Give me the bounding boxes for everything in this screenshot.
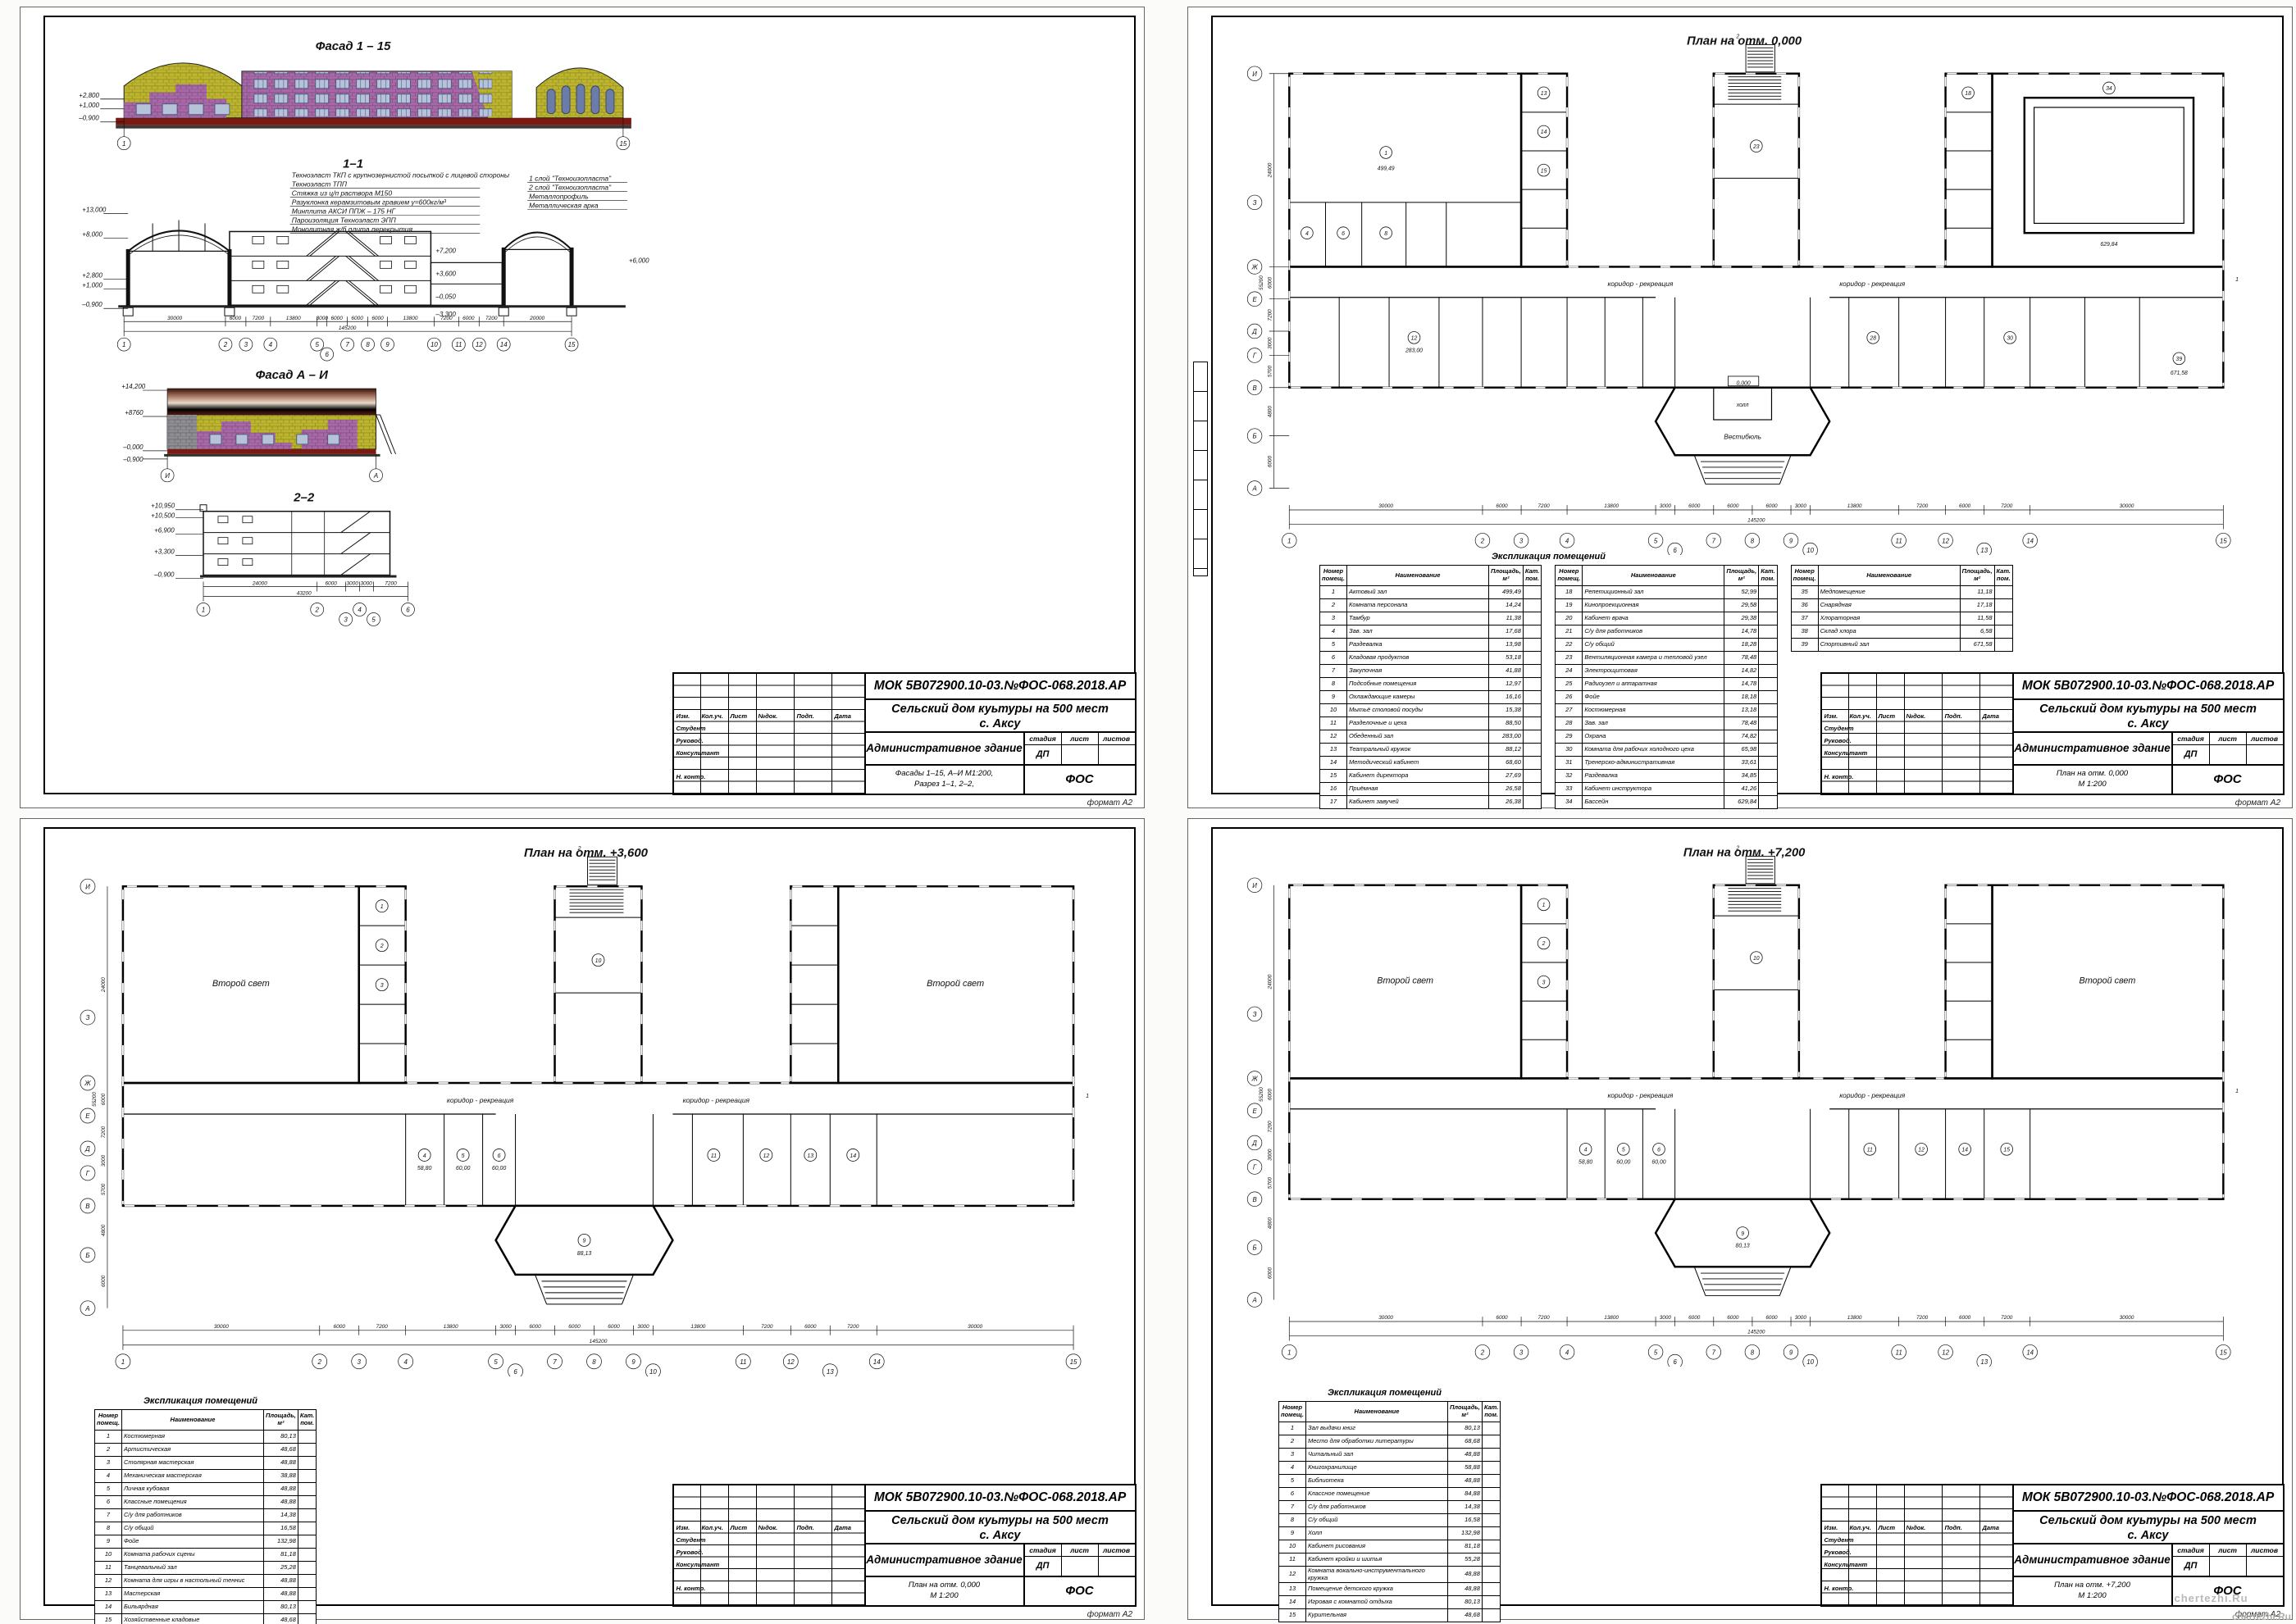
svg-text:7200: 7200 [376,1324,388,1330]
svg-text:4: 4 [1305,231,1309,237]
doc-code: МОК 5В072900.10-03.№ФОС-068.2018.АР [2014,1485,2283,1512]
svg-text:И: И [165,472,170,480]
svg-text:5700: 5700 [1268,1177,1273,1190]
elev-mark: +14,200 [121,383,146,390]
org-name: ФОС chertezhi.Ru [2171,1577,2283,1605]
svg-text:3: 3 [357,1358,361,1366]
svg-text:3000: 3000 [1660,1315,1672,1321]
table-row: 8 Подсобные помещения 12,97 [1320,678,1542,691]
svg-text:10: 10 [1806,1358,1814,1366]
elev-mark: +1,000 [79,102,99,109]
svg-text:5: 5 [371,616,376,624]
svg-text:2: 2 [1480,1349,1485,1356]
section1-title: 1–1 [343,157,363,171]
svg-text:А: А [373,472,378,480]
object-name: Административное здание [866,1544,1023,1576]
elev-mark: –0,900 [81,301,102,308]
doc-code: МОК 5В072900.10-03.№ФОС-068.2018.АР [866,674,1135,700]
room-schedule-1: Номер помещ.Наименование Площадь, м²Кат.… [1319,565,1542,809]
svg-text:11: 11 [1867,1148,1873,1153]
table-row: 26 Фойе 18,18 [1556,691,1777,704]
elev-mark: +6,900 [154,527,175,535]
svg-text:15: 15 [2220,537,2227,544]
room-area: 60,00 [1616,1160,1630,1166]
section-flag-1: 1 [2235,1089,2239,1094]
vestibule-label: Вестибюль [1724,433,1761,441]
tb-row-label: Н. контр. [676,773,706,780]
svg-text:10: 10 [430,341,438,348]
axis-bubble: 1 [122,140,125,148]
table-row: 14 Методический кабинет 68,60 [1320,757,1542,770]
table-row: 7 С/у для работников 14,38 [95,1509,317,1522]
stage-label: стадия [1025,733,1062,744]
elev-mark: +7,200 [435,247,456,254]
table-row: 11 Разделочные и цеха 88,50 [1320,717,1542,730]
dim: 7200 [253,316,265,321]
table-row: 4 Зав. зал 17,68 [1320,625,1542,639]
spec-line: Металлопрофиль [529,193,589,201]
svg-text:3000: 3000 [1268,337,1273,349]
svg-text:Г: Г [1253,353,1257,360]
svg-text:30000: 30000 [2120,503,2134,509]
svg-text:5: 5 [315,341,319,348]
svg-text:2: 2 [223,341,228,348]
svg-text:14: 14 [873,1358,881,1366]
table-row: 37 Хлораторная 11,58 [1791,612,2012,625]
svg-text:Е: Е [1252,296,1257,303]
table-row: 6 Классное помещение 84,88 [1279,1488,1501,1501]
table-row: 12 Обеденный зал 283,00 [1320,730,1542,744]
window-openings [1289,74,2223,388]
sheet-subject: План на отм. 0,000М 1:200 [2014,766,2171,794]
svg-text:24000: 24000 [101,977,107,993]
svg-text:13: 13 [827,1368,834,1376]
svg-text:13800: 13800 [1847,503,1862,509]
title-block: Изм. Кол.уч. Лист №док. Подп. Дата Студе… [672,1484,1137,1607]
svg-text:6: 6 [1657,1148,1660,1153]
table-row: 2 Артистическая 48,68 [95,1444,317,1457]
svg-text:13800: 13800 [444,1324,458,1330]
svg-text:13: 13 [1541,91,1547,97]
svg-text:3000: 3000 [499,1324,512,1330]
table-row: 3 Тамбур 11,38 [1320,612,1542,625]
arch-spec-list: 1 слой "Техноизопласта" 2 слой "Техноизо… [527,175,627,210]
svg-text:30000: 30000 [1378,503,1393,509]
axis-bubble: 15 [619,140,626,148]
table-row: 31 Тренерско-административная 33,61 [1556,757,1777,770]
svg-text:7200: 7200 [1916,1315,1929,1321]
svg-text:30000: 30000 [214,1324,229,1330]
svg-text:А: А [1251,1297,1256,1304]
room-schedule-area: Экспликация помещений Номер помещ.Наимен… [1278,1388,1501,1622]
elev-mark: +10,500 [151,512,175,520]
dim: 30000 [167,316,182,321]
svg-text:6000: 6000 [1765,1315,1778,1321]
table-row: 8 С/у общий 16,58 [1279,1514,1501,1527]
dim: 7200 [485,316,498,321]
room-schedule: Номер помещ.Наименование Площадь, м²Кат.… [94,1409,317,1624]
svg-text:11: 11 [455,341,462,348]
svg-text:12: 12 [1918,1148,1925,1153]
svg-text:7200: 7200 [2001,1315,2013,1321]
room-area: 60,00 [492,1166,507,1171]
svg-text:6000: 6000 [1496,503,1508,509]
spec-line: Пароизоляция Техноэласт ЭПП [292,216,397,224]
title-block-signatures: Изм. Кол.уч. Лист №док. Подп. Дата Студе… [1822,674,2014,794]
table-row: 13 Театральный кружок 88,12 [1320,744,1542,757]
site-watermark: chertezhi.Ru [2175,1592,2248,1604]
table-row: 29 Охрана 74,82 [1556,730,1777,744]
svg-text:5: 5 [494,1358,498,1366]
table-row: 5 Личная кубовая 48,88 [95,1483,317,1496]
schedule-title: Экспликация помещений [1328,1388,1501,1398]
window-openings [1289,885,2223,1199]
svg-text:6000: 6000 [101,1275,107,1287]
title-block-signatures: Изм. Кол.уч. Лист №док. Подп. Дата Студе… [674,674,866,794]
room-area: 58,80 [417,1166,432,1171]
svg-text:А: А [84,1305,89,1312]
sheet-plan-3600: План на отм. +3,600 [20,818,1145,1620]
svg-text:3000: 3000 [360,581,372,587]
svg-text:6: 6 [406,607,410,614]
org-name: ФОС [1023,1577,1135,1605]
table-row: 10 Кабинет рисования 81,18 [1279,1540,1501,1553]
corridor-label: коридор - рекреация [1607,280,1673,288]
plan-axes-bottom [116,1354,1081,1376]
tb-row-label: Студент [676,725,706,732]
svg-text:Д: Д [84,1145,90,1153]
table-row: 18 Репетиционный зал 52,99 [1556,586,1777,599]
room-marks: 1 4 6 8 12 13 14 15 18 23 28 30 34 39 49… [1301,82,2188,376]
schedule-title: Экспликация помещений [143,1396,317,1406]
svg-text:11: 11 [1896,1349,1902,1356]
svg-text:И: И [1252,71,1257,78]
svg-text:14: 14 [500,341,508,348]
dim: 3000 [316,316,328,321]
svg-text:13800: 13800 [1604,503,1619,509]
elev-mark: –0,900 [78,115,99,122]
table-row: 2 Комната персонала 14,24 [1320,599,1542,612]
facade-a-i: Фасад А – И +14,200 +8760 –0 [121,368,395,482]
void-label: Второй свет [1377,976,1433,986]
table-row: 14 Игровая с комнатой отдыха 80,13 [1279,1596,1501,1609]
table-row: 21 С/у для работников 14,78 [1556,625,1777,639]
svg-text:30000: 30000 [1378,1315,1393,1321]
pool-outer [2025,98,2193,233]
elev-mark: +10,950 [151,503,175,510]
room-area: 60,00 [1651,1160,1665,1166]
svg-text:6000: 6000 [1959,1315,1971,1321]
section1-drawing [118,220,626,316]
sheet-frame: Фасад 1 – 15 +2,800 +1,000 –0, [43,16,1136,794]
spec-line: Разуклонка керамзитовым гравием γ=600кг/… [292,198,447,207]
dim: 13800 [403,316,417,321]
room-area: 629,84 [2100,242,2117,248]
svg-text:15: 15 [1070,1358,1077,1366]
room-schedule-3: Номер помещ.Наименование Площадь, м²Кат.… [1791,565,2013,652]
elev-mark: +3,300 [154,548,175,556]
section-flag-1: 1 [2235,277,2239,283]
svg-text:3000: 3000 [1660,503,1672,509]
window-openings [123,886,1073,1206]
svg-text:6000: 6000 [1268,1267,1273,1280]
room-marks: 1 2 3 4 5 6 9 10 11 12 13 14 58,80 60,00… [376,900,859,1257]
table-row: 6 Кладовая продуктов 53,18 [1320,652,1542,665]
table-row: 12 Комната вокально-инструментального кр… [1279,1567,1501,1583]
svg-text:Б: Б [1253,433,1257,440]
svg-text:24000: 24000 [1268,162,1273,178]
sheet-subject: Фасады 1–15, А–И М1:200, Разрез 1–1, 2–2… [866,766,1023,794]
svg-text:Г: Г [1253,1164,1257,1171]
section-2-2: 2–2 +10,950 +10 [151,491,414,626]
room-area: 58,80 [1578,1160,1592,1166]
elev-mark: +6,000 [629,257,649,264]
svg-text:7200: 7200 [1268,1121,1273,1133]
svg-text:12: 12 [1942,537,1949,544]
svg-text:13: 13 [1980,1358,1988,1366]
svg-text:7200: 7200 [1916,503,1929,509]
svg-text:6: 6 [513,1368,517,1376]
svg-text:24000: 24000 [1268,974,1273,989]
project-line1: Сельский дом куьтуры на 500 мест [866,702,1135,716]
svg-text:14: 14 [1541,130,1547,135]
svg-text:34: 34 [2106,86,2112,92]
section-flag-2: 2 [577,846,581,852]
stairs [570,857,624,912]
svg-text:Б: Б [1253,1244,1257,1252]
svg-text:12: 12 [1942,1349,1949,1356]
svg-text:18: 18 [1965,91,1971,97]
svg-text:2: 2 [1542,941,1546,947]
svg-text:3: 3 [1519,537,1524,544]
elev-mark: –0,900 [122,456,143,463]
svg-text:28: 28 [1869,336,1876,342]
tb-col-label: Кол.уч. [702,712,723,720]
tb-col-label: Дата [835,712,851,720]
svg-text:43200: 43200 [297,591,312,597]
dim: 6000 [371,316,384,321]
svg-text:4: 4 [423,1153,426,1159]
entrance-steps [1694,455,1791,484]
svg-text:6000: 6000 [1688,1315,1701,1321]
svg-text:9: 9 [1789,1349,1793,1356]
svg-text:5: 5 [1622,1148,1625,1153]
svg-text:3000: 3000 [1795,503,1807,509]
elev-mark: +8760 [125,409,143,416]
approval-stamp [1193,362,1208,576]
plan-vdims: 24000 6000 7200 3000 5700 4800 6000 5520… [92,977,107,1287]
dim: 7200 [440,316,453,321]
tb-row-label: Консультант [676,749,720,757]
svg-text:9: 9 [583,1239,586,1244]
project-name: Сельский дом куьтуры на 500 местс. Аксу [2014,1512,2283,1544]
svg-text:6000: 6000 [1496,1315,1508,1321]
svg-text:10: 10 [1753,956,1760,962]
svg-text:7: 7 [553,1358,557,1366]
drawing-page: Фасад 1 – 15 +2,800 +1,000 –0, [0,0,2296,1624]
room-area: 671,58 [2171,371,2188,376]
elev-mark: +13,000 [82,206,107,213]
svg-text:3000: 3000 [637,1324,649,1330]
svg-text:6000: 6000 [1268,1089,1273,1101]
svg-text:Б: Б [85,1252,89,1259]
svg-text:14: 14 [2026,537,2034,544]
table-row: 15 Кабинет директора 27,69 [1320,770,1542,783]
svg-text:3000: 3000 [101,1154,107,1167]
elev-mark: –0,900 [153,571,175,579]
void-label: Второй свет [927,979,984,989]
table-row: 16 Приёмная 26,58 [1320,783,1542,796]
svg-text:9: 9 [1789,537,1793,544]
svg-text:В: В [85,1203,90,1210]
plan-3600-drawing: План на отм. +3,600 [45,829,1135,1376]
svg-text:5: 5 [1654,537,1658,544]
table-row: 15 Хозяйственные кладовые 48,68 [95,1614,317,1624]
project-name: Сельский дом куьтуры на 500 местс. Аксу [866,1512,1135,1544]
entrance-steps [535,1275,634,1304]
svg-text:23: 23 [1752,144,1760,150]
dim-total: 145200 [339,325,357,331]
svg-text:8: 8 [366,341,370,348]
list-label: лист [1062,733,1099,744]
svg-text:7: 7 [1712,537,1716,544]
pool-inner [2034,107,2184,223]
room-schedule-area: Экспликация помещений Номер помещ.Наимен… [94,1396,317,1624]
table-row: 27 Костюмерная 13,18 [1556,704,1777,717]
svg-text:7: 7 [1712,1349,1716,1356]
svg-text:А: А [1251,485,1256,493]
elev-mark: –0,050 [435,293,456,300]
object-name: Административное здание [2014,1544,2171,1576]
svg-text:3: 3 [380,983,384,989]
svg-text:1: 1 [380,904,384,910]
svg-text:6000: 6000 [1727,503,1739,509]
dim: 13800 [286,316,301,321]
svg-text:4: 4 [1584,1148,1588,1153]
svg-text:6000: 6000 [804,1324,817,1330]
sheet-frame: План на отм. 0,000 [1211,16,2284,794]
svg-text:1: 1 [122,341,125,348]
sheet-subject-line2: Разрез 1–1, 2–2, [914,780,974,790]
room-area: 80,13 [1736,1244,1750,1249]
svg-text:6000: 6000 [1688,503,1701,509]
table-row: 30 Комната для рабочих холодного цеха 65… [1556,744,1777,757]
svg-text:7200: 7200 [101,1126,107,1138]
section-flag-2: 2 [1735,34,1739,39]
sheet-subject: План на отм. 0,000М 1:200 [866,1577,1023,1605]
svg-text:12: 12 [787,1358,795,1366]
svg-text:И: И [1252,882,1257,889]
table-row: 1 Актовый зал 499,49 [1320,586,1542,599]
svg-text:15: 15 [568,341,576,348]
table-row: 35 Медпомещение 11,18 [1791,586,2012,599]
plan-7200-drawing: План на отм. +7,200 [1213,829,2284,1367]
section-1-1: 1–1 Техноэласт ТКП с крупнозернистой пос… [81,157,649,362]
svg-text:10: 10 [595,958,602,964]
svg-text:13800: 13800 [1604,1315,1619,1321]
table-row: 1 Костюмерная 80,13 [95,1431,317,1444]
plan-title: План на отм. +3,600 [524,846,649,860]
facade-1-15: Фасад 1 – 15 +2,800 +1,000 –0, [78,39,631,150]
svg-text:2: 2 [1480,537,1485,544]
table-row: 23 Вентиляционная камера и тепловой узел… [1556,652,1777,665]
svg-text:14: 14 [2026,1349,2034,1356]
svg-text:15: 15 [2220,1349,2227,1356]
dim: 6000 [330,316,343,321]
svg-text:1: 1 [1542,903,1546,908]
svg-text:145200: 145200 [590,1339,608,1344]
elev-mark: +3,600 [435,270,456,277]
stairs [1728,44,1781,99]
svg-text:3: 3 [244,341,248,348]
room-area: 60,00 [456,1166,471,1171]
project-name: Сельский дом куьтуры на 500 мест с. Аксу [866,700,1135,733]
svg-text:30: 30 [2007,336,2013,342]
svg-text:3: 3 [344,616,348,624]
svg-text:7200: 7200 [761,1324,773,1330]
svg-text:12: 12 [1411,336,1418,342]
svg-text:З: З [1253,199,1257,207]
svg-text:3000: 3000 [1268,1149,1273,1161]
svg-text:1: 1 [121,1358,125,1366]
org-name: ФОС [1023,766,1135,794]
svg-text:З: З [86,1014,90,1021]
svg-text:5: 5 [462,1153,465,1159]
external-stair [376,415,396,454]
svg-text:В: В [1252,1196,1256,1203]
table-row: 9 Фойе 132,98 [95,1535,317,1549]
room-schedule: Номер помещ.Наименование Площадь, м²Кат.… [1278,1401,1501,1622]
table-row: 28 Зав. зал 78,48 [1556,717,1777,730]
sheet-frame: План на отм. +7,200 [1211,827,2284,1606]
table-row: 7 С/у для работников 14,38 [1279,1501,1501,1514]
svg-text:И: И [85,883,90,890]
svg-text:6: 6 [325,351,329,358]
svg-text:24000: 24000 [252,581,267,587]
svg-text:Ж: Ж [84,1080,91,1087]
svg-text:4800: 4800 [1268,1217,1273,1230]
svg-text:6000: 6000 [1268,456,1273,468]
room-schedule-2: Номер помещ.Наименование Площадь, м²Кат.… [1555,565,1777,809]
svg-text:4800: 4800 [101,1224,107,1236]
svg-text:5: 5 [1654,1349,1658,1356]
svg-text:В: В [1252,384,1256,392]
elev-mark: +2,800 [79,92,99,99]
svg-text:2: 2 [317,1358,322,1366]
stair-flights [307,231,379,305]
svg-text:Ж: Ж [1250,263,1258,271]
table-row: 5 Раздевалка 13,98 [1320,639,1542,652]
svg-text:13: 13 [807,1153,813,1159]
sheet-facades: Фасад 1 – 15 +2,800 +1,000 –0, [20,7,1145,808]
corridor-label: коридор - рекреация [683,1096,750,1104]
table-row: 12 Комната для игры в настольный теннис … [95,1575,317,1588]
svg-text:1: 1 [1384,151,1387,157]
room-area: 88,13 [577,1251,592,1257]
void-label: Второй свет [212,979,270,989]
zero-mark: 0,000 [1737,381,1751,387]
svg-text:Е: Е [85,1112,90,1120]
facade-mid-windows [247,72,492,116]
tb-col-label: №док. [758,712,778,720]
format-label: формат А2 [1087,1610,1132,1619]
title-block-signatures: Изм. Кол.уч. Лист №док. Подп. Дата Студе… [1822,1485,2014,1605]
svg-text:30000: 30000 [2120,1315,2134,1321]
tb-col-label: Лист [731,712,748,720]
svg-text:Г: Г [86,1170,90,1177]
void-label: Второй свет [2080,976,2136,986]
svg-text:3000: 3000 [346,581,358,587]
